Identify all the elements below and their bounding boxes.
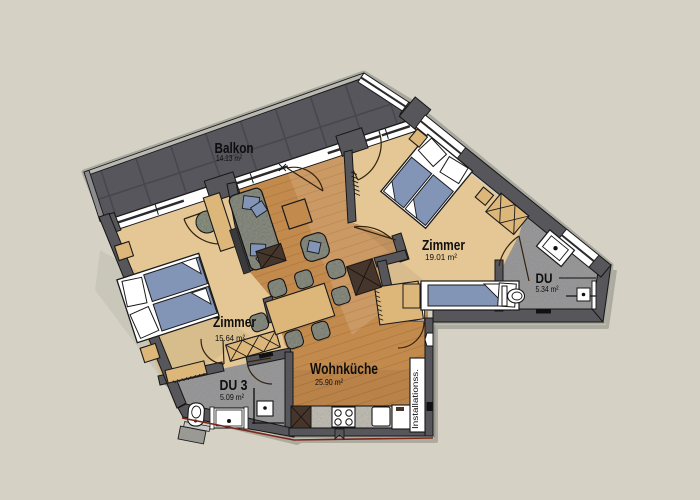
svg-text:Installationss.: Installationss. (411, 369, 420, 429)
svg-text:Wohnküche: Wohnküche (310, 361, 378, 378)
svg-text:5.09 m²: 5.09 m² (220, 392, 244, 402)
svg-text:Zimmer: Zimmer (213, 314, 256, 331)
svg-text:15.64 m²: 15.64 m² (215, 333, 245, 343)
svg-text:14.13 m²: 14.13 m² (216, 153, 242, 163)
svg-text:25.90 m²: 25.90 m² (315, 377, 343, 387)
svg-text:5.34 m²: 5.34 m² (536, 284, 559, 294)
svg-text:19.01 m²: 19.01 m² (425, 252, 457, 262)
